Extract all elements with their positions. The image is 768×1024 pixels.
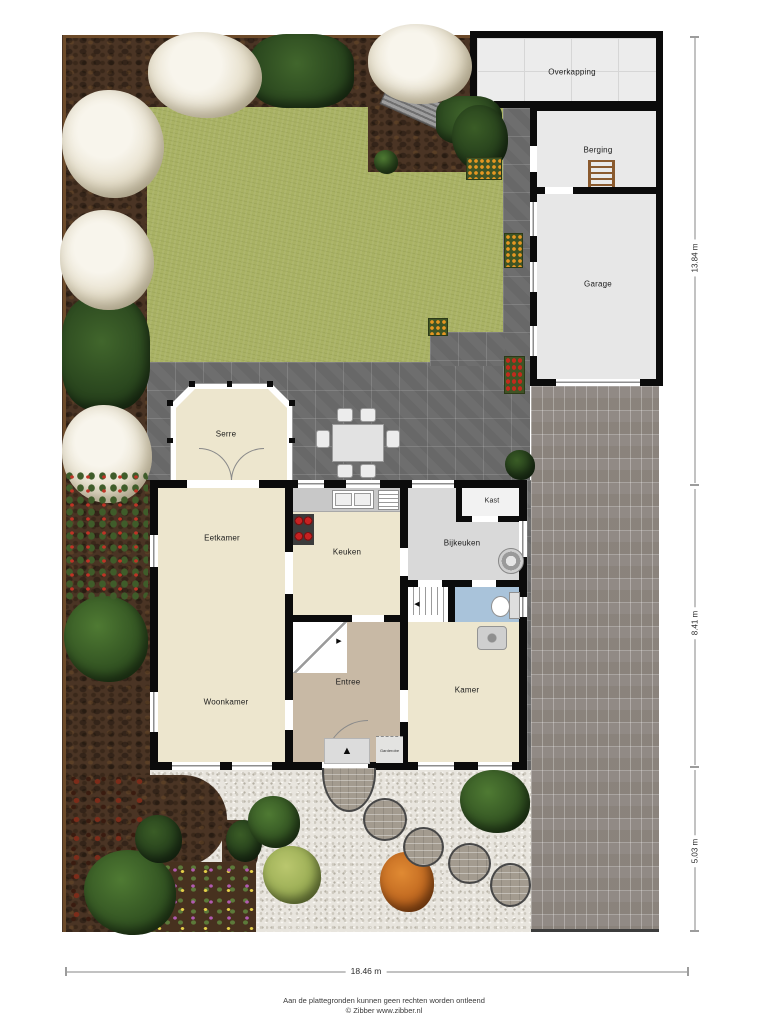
door-entree-kamer [400, 690, 408, 722]
stepping-stone-icon [403, 827, 444, 867]
label-woonkamer: Woonkamer [204, 698, 249, 707]
bush-icon [64, 596, 148, 682]
window-woonkamer-left [150, 692, 158, 732]
driveway [531, 386, 659, 932]
stairs-up-arrow-icon: ▶ [336, 637, 341, 645]
garage-window-2 [530, 262, 537, 292]
bush-icon [505, 450, 535, 480]
garderobe-nook: Garderobe [376, 736, 403, 763]
flower-strip [64, 470, 148, 600]
dimension-tick [690, 766, 699, 768]
label-entree: Entree [336, 678, 361, 687]
window-eetkamer-left [150, 535, 158, 567]
dimension-tick [690, 484, 699, 486]
door-bijkeuken-hal [418, 580, 442, 587]
serre-post [289, 400, 295, 406]
door-mat-arrow-icon: ▲ [342, 745, 353, 757]
label-kast: Kast [485, 498, 500, 505]
toilet-bowl-icon [491, 596, 510, 617]
garden-chair-icon [360, 464, 376, 478]
window-keuken-1 [298, 480, 324, 488]
label-bijkeuken: Bijkeuken [444, 539, 481, 548]
door-toilet [472, 580, 496, 587]
garage-window-3 [530, 326, 537, 356]
footer-credit: © Zibber www.zibber.nl [0, 1006, 768, 1015]
blossom-tree-icon [148, 32, 262, 118]
label-berging: Berging [584, 146, 613, 155]
kamer-sink-icon [477, 626, 507, 650]
ladder-icon [588, 160, 615, 187]
serre-post [289, 438, 295, 443]
door-keuken-bijkeuken [400, 548, 408, 576]
door-woonkamer-entree [285, 700, 293, 730]
berging-wall-top [530, 104, 663, 111]
bush-icon [135, 815, 182, 863]
driveway-edge [531, 929, 659, 932]
patio-step-area [430, 332, 505, 366]
stairs-down-arrow-icon: ◀ [414, 600, 419, 608]
serre-house-opening [187, 480, 259, 488]
serre-post [267, 381, 273, 387]
flowerbox-icon [504, 233, 523, 268]
label-overkapping: Overkapping [548, 68, 596, 77]
stairs-upper [293, 622, 347, 673]
window-kamer-1 [418, 762, 454, 770]
garage-door [556, 379, 640, 386]
hedge-icon [62, 296, 150, 410]
label-eetkamer: Eetkamer [204, 534, 240, 543]
garden-chair-icon [337, 408, 353, 422]
blossom-tree-icon [368, 24, 472, 104]
garden-chair-icon [360, 408, 376, 422]
serre-post [227, 381, 232, 387]
garden-chair-icon [337, 464, 353, 478]
dimension-tick [690, 36, 699, 38]
toilet-tank-icon [509, 592, 520, 619]
building-wall-right [656, 104, 663, 386]
berging-garage-door [545, 187, 573, 194]
dimension-tick [690, 930, 699, 932]
window-bijkeuken [412, 480, 454, 488]
label-garage: Garage [584, 280, 612, 289]
flowerbox-icon [428, 318, 448, 336]
garage-window-1 [530, 202, 537, 236]
door-keuken-entree [352, 615, 384, 622]
bush-icon [263, 846, 321, 904]
kast-door [472, 516, 498, 522]
label-kamer: Kamer [455, 686, 480, 695]
stove-icon [293, 514, 314, 545]
room-eetkamer-woonkamer [158, 488, 285, 762]
garage-floor [537, 194, 656, 384]
window-keuken-2 [346, 480, 380, 488]
dimension-label-right-middle: 8.41 m [690, 607, 701, 639]
stairs-toilet-wall [448, 587, 455, 622]
dimension-tick [65, 967, 67, 976]
garden-chair-icon [316, 430, 330, 448]
kitchen-appliance-icon [378, 490, 399, 510]
berging-door [530, 146, 537, 172]
label-keuken: Keuken [333, 548, 361, 557]
dimension-label-right-bottom: 5.03 m [690, 835, 701, 867]
footer-disclaimer: Aan de plattegronden kunnen geen rechten… [0, 996, 768, 1005]
flowerbox-icon [504, 356, 525, 394]
washing-machine-icon [498, 548, 524, 574]
door-eetkamer-keuken [285, 552, 293, 594]
window-woonkamer-2 [232, 762, 272, 770]
window-kamer-2 [478, 762, 512, 770]
door-entree-stairs [412, 615, 442, 622]
stepping-stone-icon [363, 798, 407, 841]
bush-icon [374, 150, 398, 174]
serre-post [189, 381, 195, 387]
flowerbox-icon [466, 157, 502, 180]
floorplan-canvas: ▶ ◀ ▲ Garderobe Overkapping Berg [0, 0, 768, 1024]
bush-icon [248, 796, 300, 848]
garden-table-icon [332, 424, 384, 462]
serre-post [167, 400, 173, 406]
hedge-icon [250, 34, 354, 108]
kitchen-sink-icon [332, 490, 374, 509]
overkapping-wall-right [656, 31, 663, 108]
bush-icon [460, 770, 530, 833]
serre-post [167, 438, 173, 443]
window-toilet-right [519, 597, 527, 617]
label-serre: Serre [216, 430, 237, 439]
door-mat: ▲ [324, 738, 370, 764]
window-woonkamer-1 [172, 762, 220, 770]
dimension-label-right-top: 13.84 m [690, 240, 701, 277]
garden-chair-icon [386, 430, 400, 448]
overkapping-wall-top [470, 31, 663, 38]
stepping-stone-icon [448, 843, 491, 884]
dimension-label-bottom: 18.46 m [346, 966, 387, 976]
dimension-tick [687, 967, 689, 976]
garderobe-label: Garderobe [380, 748, 399, 753]
stepping-stone-icon [490, 863, 531, 907]
